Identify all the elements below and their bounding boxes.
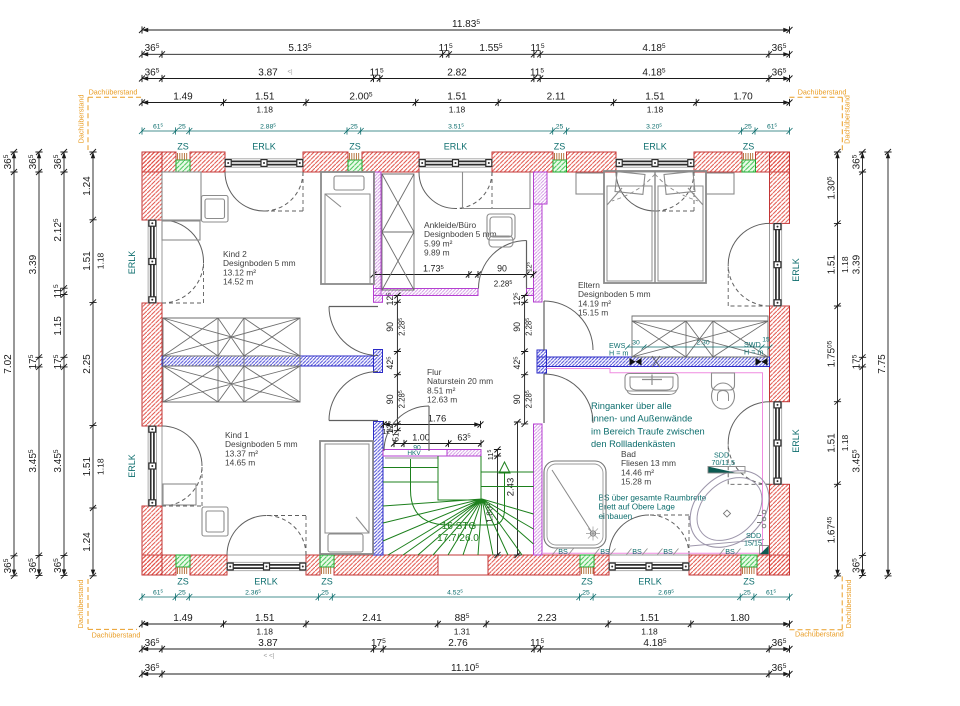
svg-text:90: 90 [385,394,395,404]
svg-text:ERLK: ERLK [127,251,137,275]
svg-text:Dachüberstand: Dachüberstand [795,630,844,639]
svg-text:1.49: 1.49 [173,613,193,624]
svg-text:3.87: 3.87 [258,67,278,78]
svg-text:Dachüberstand: Dachüberstand [76,580,85,629]
svg-text:25: 25 [556,124,564,131]
svg-text:12.63 m: 12.63 m [427,395,457,405]
svg-text:ERLK: ERLK [252,142,276,152]
svg-text:1.76: 1.76 [428,413,447,424]
svg-text:2.23: 2.23 [537,613,557,624]
svg-text:14.52 m: 14.52 m [223,277,253,287]
svg-text:1.70: 1.70 [733,91,753,102]
svg-text:1.80: 1.80 [730,613,750,624]
svg-text:3.39: 3.39 [28,254,39,274]
svg-text:2.11: 2.11 [547,91,566,102]
svg-text:30: 30 [632,340,640,347]
svg-text:15: 15 [762,337,770,344]
svg-text:ERLK: ERLK [791,429,801,453]
svg-text:BS: BS [663,547,673,556]
svg-text:3.39: 3.39 [851,254,862,274]
svg-text:1.51: 1.51 [82,251,93,271]
svg-text:1.51: 1.51 [255,613,275,624]
svg-text:90: 90 [385,322,395,332]
svg-text:2.82: 2.82 [447,67,467,78]
svg-text:Dachüberstand: Dachüberstand [92,631,141,640]
svg-text:ERLK: ERLK [638,577,662,587]
svg-text:9.89 m: 9.89 m [424,248,450,258]
svg-text:1.49: 1.49 [173,91,193,102]
svg-text:3.87: 3.87 [258,638,278,649]
svg-text:1.51: 1.51 [255,91,275,102]
svg-text:ZS: ZS [581,577,593,587]
svg-text:ERLK: ERLK [254,577,278,587]
svg-text:2.76: 2.76 [448,638,468,649]
svg-text:Ringanker über alle: Ringanker über alle [591,401,672,411]
svg-text:ERLK: ERLK [444,142,468,152]
svg-text:17.7/26.0: 17.7/26.0 [437,533,479,544]
svg-text:25: 25 [178,590,186,597]
svg-text:1.18: 1.18 [256,627,273,637]
svg-text:ZS: ZS [743,577,755,587]
svg-text:BS über gesamte Raumbreite: BS über gesamte Raumbreite [599,494,707,503]
svg-text:H = m: H = m [744,348,763,357]
svg-text:Innen- und Außenwände: Innen- und Außenwände [591,414,692,424]
svg-text:den Rollladenkästen: den Rollladenkästen [591,439,675,449]
svg-text:ZS: ZS [554,142,566,152]
svg-text:25: 25 [350,124,358,131]
svg-text:<|: <| [287,70,293,76]
svg-text:90: 90 [512,394,522,404]
svg-text:1.18: 1.18 [96,458,106,475]
svg-text:1.18: 1.18 [840,256,850,273]
svg-text:11.105: 11.105 [451,663,479,674]
svg-text:ZS: ZS [177,142,189,152]
svg-text:90: 90 [497,264,507,274]
svg-text:15.28 m: 15.28 m [621,477,651,487]
svg-text:BS: BS [600,547,610,556]
svg-text:51: 51 [391,432,401,442]
svg-text:1.51: 1.51 [826,255,837,275]
svg-text:15.15 m: 15.15 m [578,308,608,318]
svg-text:2.25: 2.25 [82,354,93,374]
svg-text:1.24: 1.24 [82,176,93,196]
svg-text:einbauen: einbauen [599,512,633,521]
svg-text:1.24: 1.24 [82,532,93,552]
svg-text:70/11,5: 70/11,5 [712,458,735,467]
svg-text:1.18: 1.18 [840,434,850,451]
svg-text:1.18: 1.18 [256,105,273,115]
svg-text:Brett auf Obere Lage: Brett auf Obere Lage [599,503,676,512]
svg-text:Dachüberstand: Dachüberstand [798,87,847,96]
svg-text:1.51: 1.51 [82,457,93,477]
svg-text:H = m: H = m [609,349,628,358]
svg-text:ERLK: ERLK [127,454,137,478]
svg-text:1.18: 1.18 [641,627,658,637]
svg-text:2.30: 2.30 [696,340,709,347]
svg-text:16 STG: 16 STG [442,521,477,532]
svg-text:Dachüberstand: Dachüberstand [77,95,86,144]
svg-text:1.51: 1.51 [826,433,837,453]
svg-text:ERLK: ERLK [791,258,801,282]
svg-text:11.835: 11.835 [452,19,480,30]
svg-text:ZS: ZS [349,142,361,152]
svg-text:ZS: ZS [177,577,189,587]
svg-text:7.75: 7.75 [877,354,888,374]
svg-text:1.51: 1.51 [447,91,467,102]
svg-text:25: 25 [321,590,329,597]
svg-text:BS: BS [632,547,642,556]
svg-text:ERLK: ERLK [643,142,667,152]
svg-text:1.51: 1.51 [645,91,665,102]
svg-text:90: 90 [512,322,522,332]
svg-text:im Bereich Traufe zwischen: im Bereich Traufe zwischen [591,426,705,436]
svg-text:25: 25 [743,590,751,597]
svg-text:25: 25 [582,590,590,597]
svg-text:7.02: 7.02 [3,354,14,374]
svg-text:1.31: 1.31 [454,627,471,637]
svg-text:Dachüberstand: Dachüberstand [89,87,138,96]
svg-text:ZS: ZS [321,577,333,587]
svg-text:< <|: < <| [263,653,274,660]
svg-text:1.18: 1.18 [449,105,466,115]
svg-text:Dachüberstand: Dachüberstand [843,95,852,144]
svg-text:2.41: 2.41 [362,613,382,624]
svg-text:1.18: 1.18 [647,105,664,115]
svg-text:1.18: 1.18 [96,252,106,269]
svg-text:1.51: 1.51 [640,613,660,624]
svg-text:ZS: ZS [743,142,755,152]
svg-text:1.00: 1.00 [412,432,430,442]
svg-text:14.65 m: 14.65 m [225,458,255,468]
svg-text:BS: BS [558,547,568,556]
svg-text:BS: BS [725,547,735,556]
svg-text:90: 90 [413,445,421,452]
svg-text:Dachüberstand: Dachüberstand [844,580,853,629]
svg-text:25: 25 [178,124,186,131]
svg-text:1.15: 1.15 [53,316,64,336]
svg-text:25: 25 [744,124,752,131]
